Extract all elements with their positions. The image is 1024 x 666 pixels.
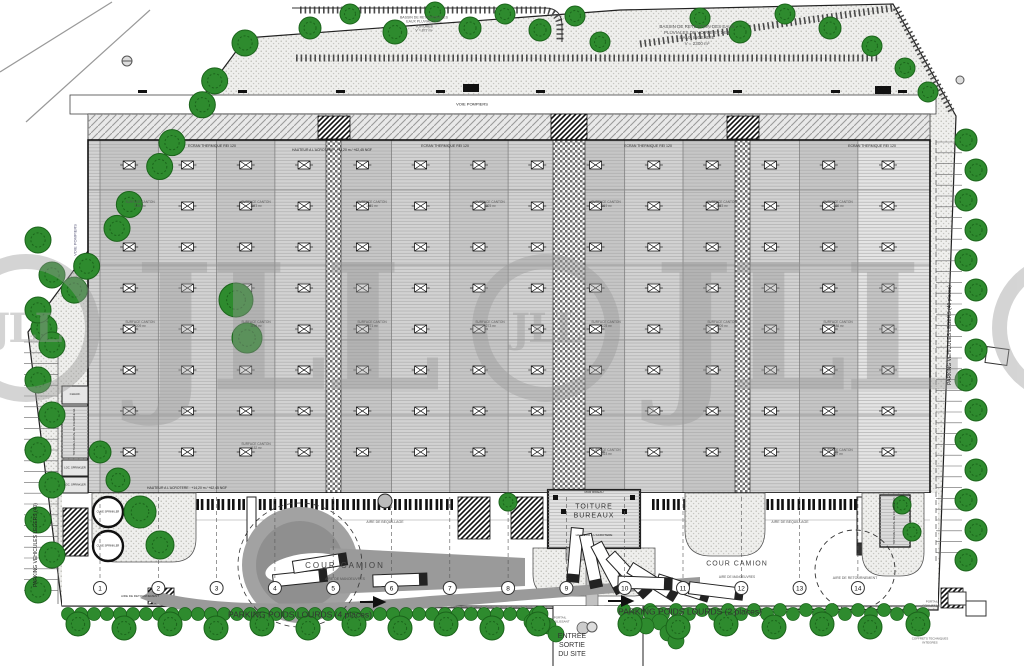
smoke-vent-icon <box>645 284 663 292</box>
tree-icon <box>342 612 366 636</box>
svg-text:13: 13 <box>796 586 804 593</box>
svg-text:5: 5 <box>331 586 335 593</box>
smoke-vent-icon <box>412 243 430 251</box>
smoke-vent-icon <box>295 202 313 210</box>
smoke-vent-icon <box>237 243 255 251</box>
tree-icon <box>529 19 551 41</box>
tree-icon <box>434 612 458 636</box>
smoke-vent-icon <box>820 284 838 292</box>
smoke-vent-icon <box>703 243 721 251</box>
smoke-vent-icon <box>761 202 779 210</box>
axis-bubble: 4 <box>268 582 281 595</box>
tree-icon <box>459 17 481 39</box>
smoke-vent-icon <box>528 243 546 251</box>
tree-icon <box>25 437 51 463</box>
tree-icon <box>918 82 938 102</box>
axis-bubble: 10 <box>618 582 631 595</box>
smoke-vent-icon <box>587 407 605 415</box>
tree-icon <box>526 612 550 636</box>
tree-icon <box>25 227 51 253</box>
tree-icon <box>965 519 987 541</box>
smoke-vent-icon <box>178 366 196 374</box>
tree-icon <box>219 283 253 317</box>
tree-icon <box>965 399 987 421</box>
smoke-vent-icon <box>587 202 605 210</box>
smoke-vent-icon <box>353 325 371 333</box>
svg-text:3: 3 <box>215 586 219 593</box>
fire-band <box>326 140 341 493</box>
tree-icon <box>965 219 987 241</box>
tree-icon <box>965 339 987 361</box>
svg-text:11: 11 <box>680 586 687 593</box>
smoke-vent-icon <box>353 161 371 169</box>
tree-icon <box>618 612 642 636</box>
tree-icon <box>25 367 51 393</box>
site-plan-drawing: 1234567891011121314 <box>0 0 1024 666</box>
smoke-vent-icon <box>412 202 430 210</box>
smoke-vent-icon <box>820 161 838 169</box>
tree-icon <box>862 36 882 56</box>
tree-icon <box>25 507 51 533</box>
smoke-vent-icon <box>645 407 663 415</box>
smoke-vent-icon <box>761 243 779 251</box>
axis-bubble: 12 <box>735 582 748 595</box>
smoke-vent-icon <box>703 325 721 333</box>
smoke-vent-icon <box>645 161 663 169</box>
warehouse-roof <box>88 140 930 493</box>
smoke-vent-icon <box>178 284 196 292</box>
tree-icon <box>495 4 515 24</box>
smoke-vent-icon <box>295 243 313 251</box>
smoke-vent-icon <box>353 284 371 292</box>
tree-icon <box>965 159 987 181</box>
smoke-vent-icon <box>879 407 897 415</box>
smoke-vent-icon <box>353 243 371 251</box>
tree-icon <box>965 279 987 301</box>
smoke-vent-icon <box>470 243 488 251</box>
site-plan: 1234567891011121314 JLL JLL JLL JLL JLL … <box>0 0 1024 666</box>
smoke-vent-icon <box>120 243 138 251</box>
axis-bubble: 7 <box>443 582 456 595</box>
smoke-vent-icon <box>412 325 430 333</box>
smoke-vent-icon <box>237 161 255 169</box>
smoke-vent-icon <box>412 284 430 292</box>
fire-band <box>553 140 585 493</box>
svg-text:14: 14 <box>854 586 862 593</box>
tree-icon <box>232 323 262 353</box>
smoke-vent-icon <box>295 448 313 456</box>
axis-bubble: 14 <box>851 582 864 595</box>
tree-icon <box>775 4 795 24</box>
smoke-vent-icon <box>528 202 546 210</box>
tree-icon <box>104 215 130 241</box>
smoke-vent-icon <box>820 448 838 456</box>
tree-icon <box>250 612 274 636</box>
tree-icon <box>666 615 690 639</box>
smoke-vent-icon <box>237 448 255 456</box>
smoke-vent-icon <box>120 325 138 333</box>
smoke-vent-icon <box>295 284 313 292</box>
tree-icon <box>383 20 407 44</box>
smoke-vent-icon <box>703 407 721 415</box>
smoke-vent-icon <box>353 202 371 210</box>
smoke-vent-icon <box>879 161 897 169</box>
fire-band <box>735 140 750 493</box>
tree-icon <box>965 459 987 481</box>
smoke-vent-icon <box>761 407 779 415</box>
tree-icon <box>340 4 360 24</box>
tree-icon <box>299 17 321 39</box>
smoke-vent-icon <box>470 407 488 415</box>
axis-bubble: 6 <box>385 582 398 595</box>
tree-icon <box>116 191 142 217</box>
smoke-vent-icon <box>645 448 663 456</box>
smoke-vent-icon <box>412 448 430 456</box>
smoke-vent-icon <box>820 407 838 415</box>
tree-icon <box>61 277 87 303</box>
axis-bubble: 3 <box>210 582 223 595</box>
smoke-vent-icon <box>353 407 371 415</box>
smoke-vent-icon <box>178 243 196 251</box>
tree-icon <box>810 612 834 636</box>
tree-icon <box>25 577 51 603</box>
smoke-vent-icon <box>645 243 663 251</box>
tree-icon <box>158 612 182 636</box>
smoke-vent-icon <box>761 448 779 456</box>
smoke-vent-icon <box>528 448 546 456</box>
tree-icon <box>690 8 710 28</box>
tree-icon <box>39 542 65 568</box>
tree-icon <box>955 249 977 271</box>
tree-icon <box>425 2 445 22</box>
tree-icon <box>106 468 130 492</box>
smoke-vent-icon <box>412 366 430 374</box>
smoke-vent-icon <box>879 325 897 333</box>
smoke-vent-icon <box>703 284 721 292</box>
smoke-vent-icon <box>761 366 779 374</box>
smoke-vent-icon <box>703 366 721 374</box>
smoke-vent-icon <box>879 202 897 210</box>
svg-text:10: 10 <box>621 586 629 593</box>
smoke-vent-icon <box>178 161 196 169</box>
north-canopy-hatch <box>88 114 930 140</box>
tree-icon <box>955 189 977 211</box>
smoke-vent-icon <box>820 366 838 374</box>
tree-icon <box>39 332 65 358</box>
tree-icon <box>955 129 977 151</box>
smoke-vent-icon <box>412 407 430 415</box>
smoke-vent-icon <box>470 325 488 333</box>
tree-icon <box>147 154 173 180</box>
tree-icon <box>895 58 915 78</box>
smoke-vent-icon <box>587 284 605 292</box>
smoke-vent-icon <box>470 448 488 456</box>
tree-icon <box>903 523 921 541</box>
svg-text:2: 2 <box>156 586 160 593</box>
svg-text:8: 8 <box>506 586 510 593</box>
tree-icon <box>762 615 786 639</box>
smoke-vent-icon <box>120 407 138 415</box>
smoke-vent-icon <box>237 202 255 210</box>
smoke-vent-icon <box>120 366 138 374</box>
svg-text:7: 7 <box>448 586 452 593</box>
tree-icon <box>819 17 841 39</box>
smoke-vent-icon <box>587 325 605 333</box>
smoke-vent-icon <box>879 448 897 456</box>
tree-icon <box>202 68 228 94</box>
tree-icon <box>39 402 65 428</box>
tree-icon <box>74 253 100 279</box>
smoke-vent-icon <box>470 161 488 169</box>
smoke-vent-icon <box>761 325 779 333</box>
smoke-vent-icon <box>820 202 838 210</box>
smoke-vent-icon <box>353 448 371 456</box>
smoke-vent-icon <box>528 407 546 415</box>
smoke-vent-icon <box>761 284 779 292</box>
smoke-vent-icon <box>237 366 255 374</box>
axis-bubble: 5 <box>327 582 340 595</box>
tree-icon <box>89 441 111 463</box>
tree-icon <box>714 612 738 636</box>
technical-rooms <box>62 386 88 556</box>
smoke-vent-icon <box>703 161 721 169</box>
axis-bubble: 1 <box>94 582 107 595</box>
tree-icon <box>893 496 911 514</box>
axis-bubble: 2 <box>152 582 165 595</box>
svg-text:6: 6 <box>390 586 394 593</box>
smoke-vent-icon <box>528 366 546 374</box>
tree-icon <box>729 21 751 43</box>
smoke-vent-icon <box>178 325 196 333</box>
tree-icon <box>955 489 977 511</box>
smoke-vent-icon <box>470 366 488 374</box>
smoke-vent-icon <box>295 325 313 333</box>
smoke-vent-icon <box>879 243 897 251</box>
tree-icon <box>159 130 185 156</box>
tree-icon <box>480 616 504 640</box>
smoke-vent-icon <box>178 202 196 210</box>
smoke-vent-icon <box>178 407 196 415</box>
tree-icon <box>66 612 90 636</box>
smoke-vent-icon <box>528 161 546 169</box>
smoke-vent-icon <box>470 202 488 210</box>
smoke-vent-icon <box>879 284 897 292</box>
tree-icon <box>39 262 65 288</box>
smoke-vent-icon <box>879 366 897 374</box>
svg-text:4: 4 <box>273 586 277 593</box>
smoke-vent-icon <box>528 325 546 333</box>
tree-icon <box>146 531 174 559</box>
tree-icon <box>204 616 228 640</box>
axis-bubble: 9 <box>560 582 573 595</box>
smoke-vent-icon <box>295 161 313 169</box>
smoke-vent-icon <box>587 448 605 456</box>
smoke-vent-icon <box>470 284 488 292</box>
tree-icon <box>25 297 51 323</box>
smoke-vent-icon <box>587 161 605 169</box>
smoke-vent-icon <box>528 284 546 292</box>
tree-icon <box>232 30 258 56</box>
tree-icon <box>124 496 156 528</box>
smoke-vent-icon <box>295 407 313 415</box>
svg-text:9: 9 <box>565 586 569 593</box>
tree-icon <box>39 472 65 498</box>
tree-icon <box>955 369 977 391</box>
tree-icon <box>499 493 517 511</box>
smoke-vent-icon <box>645 366 663 374</box>
smoke-vent-icon <box>703 202 721 210</box>
tree-icon <box>189 92 215 118</box>
tree-icon <box>858 615 882 639</box>
svg-text:12: 12 <box>738 586 746 593</box>
tree-icon <box>565 6 585 26</box>
smoke-vent-icon <box>412 161 430 169</box>
tree-icon <box>112 616 136 640</box>
tree-icon <box>388 616 412 640</box>
smoke-vent-icon <box>820 325 838 333</box>
smoke-vent-icon <box>120 284 138 292</box>
axis-bubble: 8 <box>502 582 515 595</box>
smoke-vent-icon <box>761 161 779 169</box>
smoke-vent-icon <box>587 366 605 374</box>
smoke-vent-icon <box>120 161 138 169</box>
smoke-vent-icon <box>353 366 371 374</box>
smoke-vent-icon <box>645 325 663 333</box>
smoke-vent-icon <box>295 366 313 374</box>
tree-icon <box>590 32 610 52</box>
smoke-vent-icon <box>820 243 838 251</box>
tree-icon <box>906 612 930 636</box>
smoke-vent-icon <box>587 243 605 251</box>
truck <box>373 573 427 587</box>
tree-icon <box>955 549 977 571</box>
tree-icon <box>955 429 977 451</box>
tree-icon <box>296 616 320 640</box>
svg-text:1: 1 <box>98 586 102 593</box>
smoke-vent-icon <box>703 448 721 456</box>
smoke-vent-icon <box>237 407 255 415</box>
smoke-vent-icon <box>120 448 138 456</box>
axis-bubble: 13 <box>793 582 806 595</box>
axis-bubble: 11 <box>677 582 690 595</box>
smoke-vent-icon <box>178 448 196 456</box>
tree-icon <box>955 309 977 331</box>
smoke-vent-icon <box>645 202 663 210</box>
